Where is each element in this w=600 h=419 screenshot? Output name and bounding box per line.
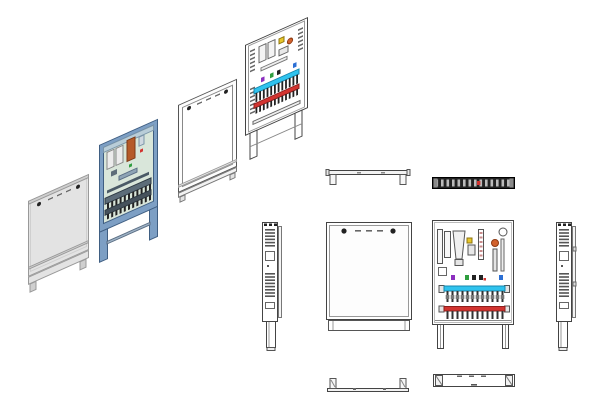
- side-top-screw: [274, 224, 277, 227]
- front-door: [330, 226, 409, 317]
- side-top-screw: [568, 224, 571, 227]
- side-leg: [559, 322, 568, 348]
- side-foot: [559, 348, 567, 351]
- view-bottom-closed: [325, 376, 411, 394]
- dark-valve: [472, 275, 476, 280]
- riser-pipe: [493, 249, 497, 271]
- controller-box: [139, 135, 144, 146]
- screw-icon: [390, 228, 395, 233]
- front-dashes: [355, 230, 383, 232]
- exploded-door-panel: [28, 173, 90, 297]
- top-end-cap: [326, 170, 329, 176]
- side-depth-line: [279, 227, 282, 318]
- blue-valve: [499, 275, 503, 280]
- red-dot: [484, 278, 487, 281]
- top-open-end-right: [510, 179, 514, 188]
- technical-drawing-canvas: [0, 0, 600, 419]
- side-top-screw: [558, 224, 561, 227]
- front-plinth: [329, 321, 410, 331]
- top-mark: [381, 172, 385, 174]
- side-top-screw: [563, 224, 566, 227]
- bottom-bar: [328, 389, 409, 392]
- din-rail: [438, 230, 443, 264]
- gauge-dial: [499, 228, 507, 236]
- view-side-right: [554, 220, 578, 352]
- purple-actuator: [451, 275, 455, 280]
- top-mark: [357, 172, 361, 174]
- riser-pipe-2: [501, 239, 504, 271]
- return-manifold: [444, 307, 505, 312]
- side-panel: [445, 232, 451, 258]
- view-bottom-open: [431, 372, 517, 390]
- manifold-end-cap: [439, 306, 444, 312]
- mixing-valve: [468, 245, 475, 255]
- yellow-valve: [467, 238, 472, 243]
- bottom-mark: [383, 388, 386, 390]
- side-body: [557, 223, 572, 322]
- expansion-cylinder-outline: [259, 44, 266, 63]
- manifold-unit-drawing: [99, 118, 159, 265]
- expansion-cylinder: [116, 145, 123, 165]
- unit-leg-left: [100, 229, 108, 263]
- side-body: [263, 223, 278, 322]
- expansion-cylinder: [107, 149, 114, 169]
- view-top-open: [431, 175, 517, 191]
- unit-leg-right: [150, 206, 158, 240]
- side-dot: [267, 265, 269, 267]
- hinge-tick: [573, 247, 576, 251]
- dark-valve: [479, 275, 483, 280]
- bottom-open-marks: [457, 376, 486, 378]
- exploded-cabinet-open: [245, 17, 309, 165]
- door-panel-drawing: [28, 173, 90, 297]
- exploded-mounting-frame: [178, 78, 238, 203]
- pump-base: [455, 260, 463, 266]
- expansion-cylinder-outline: [268, 40, 275, 59]
- supply-manifold: [444, 286, 505, 291]
- top-foot: [400, 175, 406, 185]
- mounting-frame-drawing: [178, 78, 238, 203]
- exploded-manifold-unit-colored: [99, 118, 159, 265]
- screw-icon: [341, 228, 346, 233]
- cabinet-leg-left: [250, 130, 257, 159]
- orange-valve: [492, 240, 499, 247]
- side-depth-line: [573, 227, 576, 318]
- bottom-center-mark: [471, 384, 477, 386]
- top-bar: [328, 171, 409, 175]
- cabinet-open-drawing: [245, 17, 309, 165]
- side-top-screw: [264, 224, 267, 227]
- side-leg: [267, 322, 276, 348]
- top-end-cap: [407, 170, 410, 176]
- top-open-end-left: [434, 179, 438, 188]
- heat-exchanger: [127, 137, 135, 162]
- view-top-closed: [325, 168, 411, 188]
- hinge-tick: [573, 282, 576, 286]
- view-front-closed: [325, 221, 413, 333]
- top-open-red-mark: [477, 181, 480, 185]
- side-top-screw: [269, 224, 272, 227]
- green-valve: [465, 275, 469, 280]
- manifold-end-cap: [439, 286, 444, 293]
- top-foot: [330, 175, 336, 185]
- side-dot: [561, 265, 563, 267]
- bottom-mark: [353, 388, 356, 390]
- view-side-left: [261, 220, 285, 352]
- side-foot: [267, 348, 275, 351]
- view-front-open: [431, 219, 517, 351]
